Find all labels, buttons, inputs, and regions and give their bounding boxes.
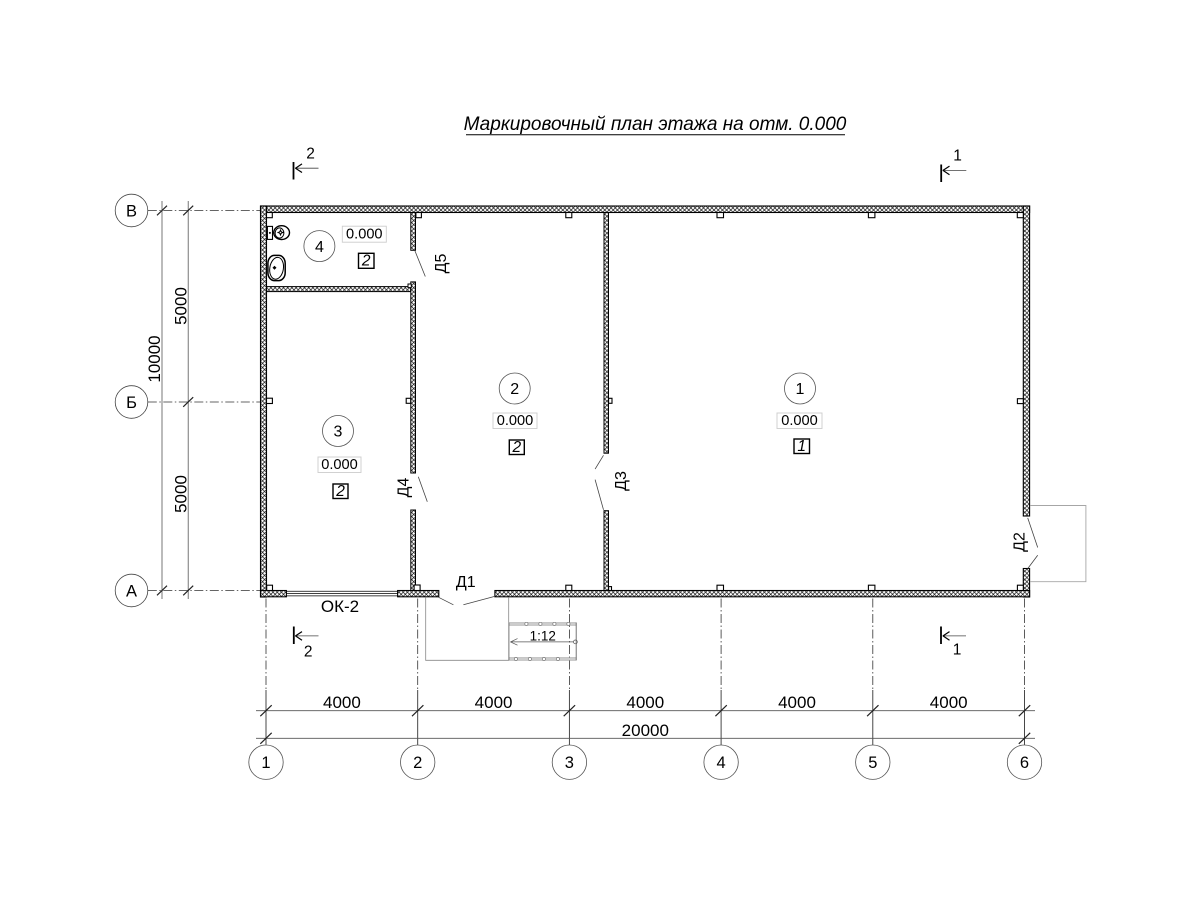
svg-text:20000: 20000 <box>622 721 669 740</box>
svg-text:4: 4 <box>315 239 324 256</box>
svg-text:2: 2 <box>304 643 313 660</box>
svg-text:4000: 4000 <box>778 693 816 712</box>
svg-text:4000: 4000 <box>475 693 513 712</box>
svg-text:Д3: Д3 <box>613 471 630 491</box>
svg-text:2: 2 <box>413 754 422 772</box>
svg-text:3: 3 <box>565 754 574 772</box>
svg-text:4000: 4000 <box>323 693 361 712</box>
svg-text:6: 6 <box>1020 754 1029 772</box>
svg-text:5000: 5000 <box>171 475 190 513</box>
svg-text:2: 2 <box>361 252 371 269</box>
svg-text:Д5: Д5 <box>433 254 450 274</box>
svg-text:10000: 10000 <box>145 335 164 382</box>
svg-text:Д1: Д1 <box>456 574 476 591</box>
svg-text:4: 4 <box>717 754 726 772</box>
svg-text:5000: 5000 <box>171 287 190 325</box>
svg-text:1: 1 <box>796 381 805 398</box>
svg-text:Д2: Д2 <box>1012 532 1029 552</box>
svg-text:1: 1 <box>797 438 806 455</box>
svg-text:2: 2 <box>510 381 519 398</box>
svg-text:0.000: 0.000 <box>497 413 534 429</box>
svg-text:В: В <box>126 202 137 220</box>
svg-text:5: 5 <box>868 754 877 772</box>
svg-text:4000: 4000 <box>626 693 664 712</box>
svg-text:1: 1 <box>953 148 962 165</box>
svg-text:0.000: 0.000 <box>346 227 383 243</box>
svg-text:2: 2 <box>306 146 315 163</box>
svg-text:А: А <box>126 582 137 600</box>
svg-text:4000: 4000 <box>930 693 968 712</box>
svg-text:0.000: 0.000 <box>321 457 358 473</box>
svg-text:1: 1 <box>261 754 270 772</box>
svg-text:Д4: Д4 <box>396 478 413 498</box>
svg-text:3: 3 <box>334 424 343 441</box>
svg-text:Маркировочный план этажа на от: Маркировочный план этажа на отм. 0.000 <box>464 114 847 135</box>
svg-text:Б: Б <box>126 394 137 412</box>
svg-text:2: 2 <box>335 483 345 500</box>
svg-text:1: 1 <box>953 642 962 659</box>
svg-text:1:12: 1:12 <box>530 629 556 644</box>
svg-text:ОК-2: ОК-2 <box>321 597 359 616</box>
svg-text:0.000: 0.000 <box>781 413 818 429</box>
svg-text:2: 2 <box>511 439 521 456</box>
